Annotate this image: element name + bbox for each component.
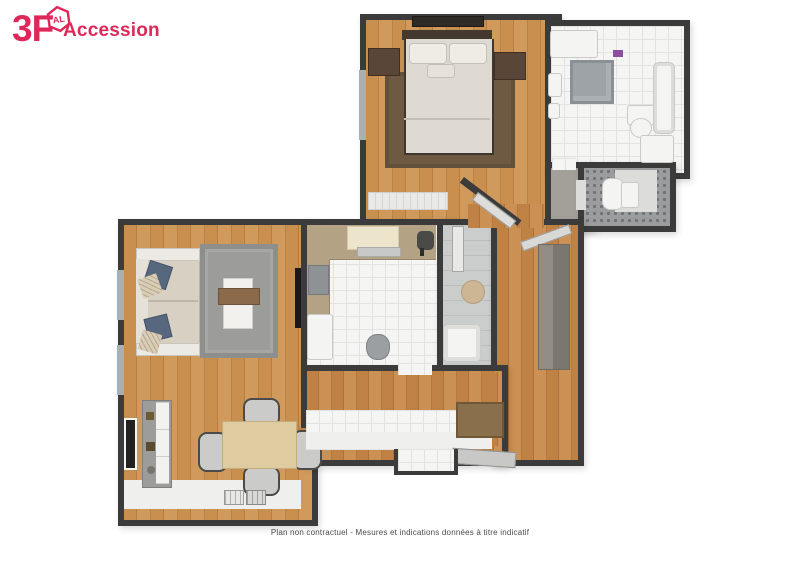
washbasin [548, 73, 562, 97]
wc-door-gap [576, 180, 586, 210]
coffee-table [218, 288, 260, 305]
sideboard-decor-3 [147, 466, 155, 474]
kitchen-faucet [420, 248, 424, 256]
wardrobe [538, 244, 570, 370]
sideboard-decor-1 [146, 412, 154, 420]
bathroom-shelf [548, 103, 560, 119]
plan-disclaimer-text: Plan non contractuel - Mesures et indica… [0, 528, 800, 537]
shower-room-door-leaf [452, 226, 464, 272]
bed-pillow-left [409, 43, 447, 64]
bathroom-cabinet [640, 135, 674, 163]
bathtub [653, 62, 675, 134]
bed-pillow-right [449, 43, 487, 64]
bedroom-window [359, 70, 366, 140]
wc-toilet-tank [621, 182, 639, 208]
kitchen-fridge [307, 314, 333, 360]
bed-blanket-fold [404, 118, 490, 120]
washing-machine [443, 324, 481, 362]
nightstand-left [368, 48, 400, 76]
living-window-top [117, 270, 124, 320]
bed-cushion [427, 64, 455, 78]
sideboard-drawers [156, 402, 169, 484]
bathroom-vanity [550, 30, 598, 58]
entrance-step [394, 449, 458, 475]
tv [295, 268, 301, 328]
dining-wall-frame [124, 418, 137, 470]
shower [570, 60, 614, 104]
books-stack-1 [224, 490, 244, 505]
towel [613, 50, 623, 57]
shower-room-basin [461, 280, 485, 304]
bedroom-radiator [368, 192, 448, 210]
kitchen-hob [357, 247, 401, 257]
brand-accession-text: Accession [63, 20, 160, 42]
books-stack-2 [246, 490, 266, 505]
floor-plan-page: 3F AL Accession [0, 0, 800, 565]
dining-table [222, 421, 297, 469]
nightstand-right [494, 52, 526, 80]
sofa-cushion-seam [148, 300, 198, 302]
bedroom-wall-picture [412, 16, 484, 27]
bathroom-door-gap [552, 158, 576, 170]
doormat [456, 402, 504, 438]
living-window-bottom [117, 345, 124, 395]
sideboard-decor-2 [146, 442, 155, 451]
kitchen-stool [366, 334, 390, 360]
kitchen-oven [308, 265, 329, 295]
kitchen-door-gap [398, 363, 432, 375]
